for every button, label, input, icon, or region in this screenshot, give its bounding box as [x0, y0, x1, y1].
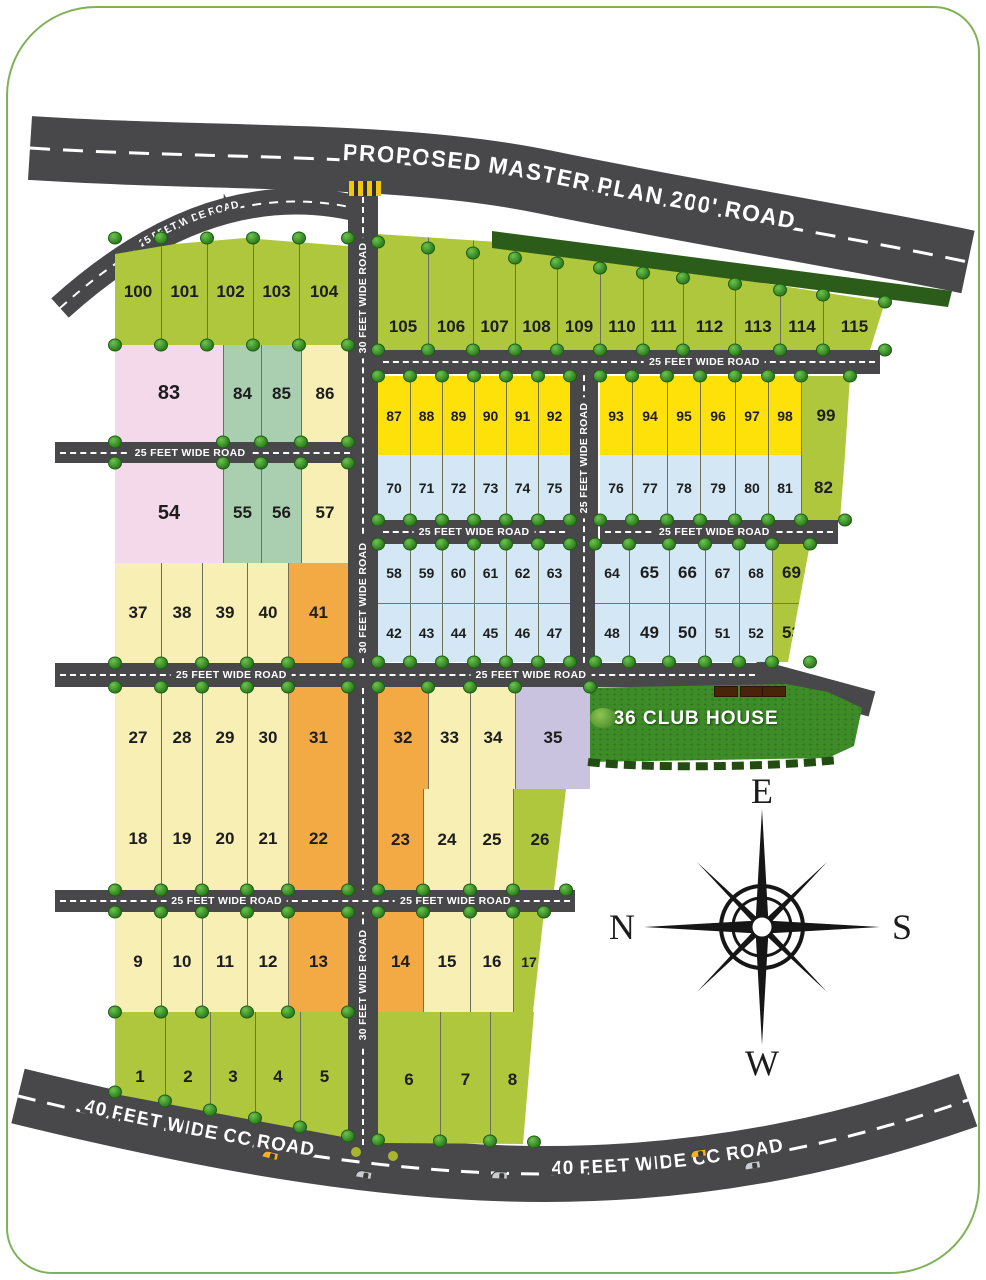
- plot-34: 34: [470, 687, 515, 789]
- bush-icon: [216, 457, 230, 470]
- palm-tree-icon: [28, 924, 92, 990]
- palm-tree-icon: [566, 1184, 630, 1250]
- bush-icon: [371, 514, 385, 527]
- bush-icon: [676, 344, 690, 357]
- bush-icon: [588, 538, 602, 551]
- bush-icon: [292, 232, 306, 245]
- plot-99: 99: [801, 376, 850, 455]
- bush-icon: [466, 247, 480, 260]
- road-width-label: 25 FEET WIDE ROAD: [654, 526, 775, 538]
- bush-icon: [773, 344, 787, 357]
- bush-icon: [416, 884, 430, 897]
- plot-number: 58: [386, 565, 402, 581]
- bush-icon: [154, 339, 168, 352]
- plot-number: 48: [604, 625, 620, 641]
- plot-number: 90: [483, 408, 499, 424]
- plot-number: 104: [310, 282, 338, 302]
- bush-icon: [660, 514, 674, 527]
- plots-83-86: 83848586: [115, 345, 348, 442]
- plot-number: 34: [484, 728, 503, 748]
- plots-87-92: 878889909192: [378, 376, 570, 455]
- bush-icon: [593, 370, 607, 383]
- plot-62: 62: [506, 544, 538, 603]
- plot-number: 115: [841, 317, 868, 337]
- plot-number: 42: [386, 625, 402, 641]
- plot-84: 84: [223, 345, 261, 442]
- plot-number: 20: [216, 829, 235, 849]
- bush-icon: [403, 538, 417, 551]
- plot-number: 12: [259, 952, 278, 972]
- bush-icon: [499, 656, 513, 669]
- palm-tree-icon: [526, 914, 590, 980]
- plot-number: 59: [419, 565, 435, 581]
- parked-car: [762, 686, 786, 697]
- plot-42: 42: [378, 604, 410, 663]
- plot-90: 90: [474, 376, 506, 455]
- plot-107: 107: [473, 230, 515, 350]
- bush-icon: [693, 514, 707, 527]
- plot-33: 33: [428, 687, 470, 789]
- plot-row: 424344454647: [378, 603, 570, 663]
- plot-58: 58: [378, 544, 410, 603]
- bush-icon: [158, 1095, 172, 1108]
- road-width-label: 30 FEET WIDE ROAD: [357, 238, 369, 359]
- plots-32-35: 32333435: [378, 687, 590, 789]
- plot-20: 20: [202, 788, 247, 890]
- plot-number: 41: [309, 603, 328, 623]
- bush-icon: [240, 657, 254, 670]
- plot-number: 75: [547, 480, 563, 496]
- plot-number: 37: [129, 603, 148, 623]
- plot-number: 50: [678, 623, 697, 643]
- plot-89: 89: [442, 376, 474, 455]
- plot-number: 32: [394, 728, 413, 748]
- plot-number: 109: [565, 317, 593, 337]
- bush-icon: [341, 436, 355, 449]
- bush-icon: [466, 344, 480, 357]
- bush-icon: [294, 457, 308, 470]
- plot-77: 77: [632, 455, 667, 520]
- plot-row: 23242526: [378, 789, 566, 890]
- plot-5: 5: [300, 1012, 348, 1142]
- horizontal-road: 25 FEET WIDE ROAD: [55, 442, 355, 463]
- bush-icon: [467, 656, 481, 669]
- palm-tree-icon: [68, 184, 132, 250]
- bush-icon: [803, 656, 817, 669]
- bush-icon: [483, 1135, 497, 1148]
- plot-81: 81: [768, 455, 801, 520]
- bush-icon: [463, 681, 477, 694]
- palm-tree-icon: [15, 1029, 79, 1095]
- bush-icon: [403, 514, 417, 527]
- bush-icon: [508, 344, 522, 357]
- plot-number: 106: [437, 317, 465, 337]
- plot-12: 12: [247, 912, 288, 1012]
- plot-row: 93949596979899: [600, 376, 850, 455]
- plot-number: 84: [233, 384, 252, 404]
- plot-70: 70: [378, 455, 410, 520]
- plot-number: 70: [386, 480, 402, 496]
- bush-icon: [435, 370, 449, 383]
- plot-number: 21: [259, 829, 278, 849]
- bush-icon: [341, 884, 355, 897]
- plot-46: 46: [506, 604, 538, 663]
- bush-icon: [765, 656, 779, 669]
- plot-number: 26: [531, 830, 550, 850]
- plot-number: 57: [316, 503, 335, 523]
- plot-96: 96: [700, 376, 735, 455]
- plot-104: 104: [299, 238, 348, 345]
- plot-number: 85: [272, 384, 291, 404]
- plot-row: 646566676869: [595, 544, 810, 603]
- compass-letter-left: N: [609, 907, 635, 947]
- plots-76-82: 76777879808182: [600, 455, 845, 520]
- plot-row: 878889909192: [378, 376, 570, 455]
- plot-number: 6: [404, 1070, 413, 1090]
- plot-92: 92: [538, 376, 570, 455]
- bush-icon: [794, 514, 808, 527]
- plot-number: 98: [777, 408, 793, 424]
- bush-icon: [463, 906, 477, 919]
- plots-58-63-42-47: 585960616263424344454647: [378, 544, 570, 662]
- bush-icon: [499, 514, 513, 527]
- club-bush-icon: [590, 708, 616, 728]
- plot-number: 35: [544, 728, 563, 748]
- bush-icon: [371, 681, 385, 694]
- plot-number: 73: [483, 480, 499, 496]
- plot-number: 3: [228, 1067, 237, 1087]
- plot-number: 1: [135, 1067, 144, 1087]
- plot-38: 38: [161, 563, 202, 663]
- plot-number: 99: [817, 406, 836, 426]
- bush-icon: [108, 1006, 122, 1019]
- bush-icon: [583, 681, 597, 694]
- bush-icon: [281, 884, 295, 897]
- bush-icon: [154, 657, 168, 670]
- plot-number: 25: [483, 830, 502, 850]
- plot-number: 40: [259, 603, 278, 623]
- bush-icon: [508, 252, 522, 265]
- road-width-label: 30 FEET WIDE ROAD: [357, 538, 369, 659]
- bush-icon: [108, 906, 122, 919]
- bush-icon: [416, 906, 430, 919]
- club-house-label: 36 CLUB HOUSE: [614, 708, 779, 730]
- plot-68: 68: [739, 544, 772, 603]
- bush-icon: [843, 370, 857, 383]
- plot-102: 102: [207, 238, 253, 345]
- bush-icon: [693, 370, 707, 383]
- plot-94: 94: [632, 376, 667, 455]
- road-width-label: 25 FEET WIDE ROAD: [395, 895, 516, 907]
- bush-icon: [550, 257, 564, 270]
- bush-icon: [341, 1006, 355, 1019]
- plot-number: 28: [173, 728, 192, 748]
- road-width-label: 25 FEET WIDE ROAD: [130, 447, 251, 459]
- plot-number: 64: [604, 565, 620, 581]
- plot-6: 6: [378, 1012, 440, 1147]
- plot-97: 97: [735, 376, 768, 455]
- bush-icon: [341, 681, 355, 694]
- palm-tree-icon: [252, 1159, 316, 1225]
- bush-icon: [154, 906, 168, 919]
- plots-9-13: 910111213: [115, 912, 348, 1012]
- plot-74: 74: [506, 455, 538, 520]
- plot-25: 25: [470, 789, 513, 890]
- crossing-stripes: [349, 181, 381, 196]
- bush-icon: [878, 296, 892, 309]
- bush-icon: [433, 1134, 447, 1147]
- plot-98: 98: [768, 376, 801, 455]
- plot-number: 78: [676, 480, 692, 496]
- bush-icon: [506, 884, 520, 897]
- plot-24: 24: [423, 789, 470, 890]
- bush-icon: [550, 344, 564, 357]
- bush-icon: [559, 884, 573, 897]
- bush-icon: [803, 538, 817, 551]
- plot-number: 112: [696, 317, 723, 337]
- plot-number: 63: [547, 565, 563, 581]
- bush-icon: [341, 339, 355, 352]
- plot-number: 74: [515, 480, 531, 496]
- plot-49: 49: [629, 604, 669, 663]
- bush-icon: [531, 656, 545, 669]
- plot-87: 87: [378, 376, 410, 455]
- plot-number: 51: [715, 625, 731, 641]
- bush-icon: [794, 370, 808, 383]
- palm-tree-icon: [14, 64, 78, 130]
- bush-icon: [203, 1103, 217, 1116]
- road-width-label: 25 FEET WIDE ROAD: [578, 398, 590, 519]
- plot-9: 9: [115, 912, 161, 1012]
- palm-tree-icon: [48, 1114, 112, 1180]
- plot-47: 47: [538, 604, 570, 663]
- parked-car: [714, 686, 738, 697]
- bush-icon: [728, 344, 742, 357]
- road-dash-line: [383, 361, 875, 363]
- road-width-label: 30 FEET WIDE ROAD: [357, 925, 369, 1046]
- plot-57: 57: [301, 463, 348, 563]
- bush-icon: [371, 656, 385, 669]
- bush-icon: [341, 1130, 355, 1143]
- bush-icon: [200, 339, 214, 352]
- plot-number: 39: [216, 603, 235, 623]
- plot-32: 32: [378, 687, 428, 789]
- road-width-label: 25 FEET WIDE ROAD: [471, 669, 592, 681]
- palm-tree-icon: [782, 1126, 846, 1192]
- bush-icon: [281, 657, 295, 670]
- site-plan-map: PROPOSED MASTER PLAN 200' ROAD 25 FEET W…: [0, 0, 986, 1280]
- plot-82: 82: [801, 455, 845, 520]
- plot-number: 61: [483, 565, 499, 581]
- bush-icon: [467, 538, 481, 551]
- plots-37-41: 3738394041: [115, 563, 348, 663]
- plot-30: 30: [247, 687, 288, 788]
- plots-100-104: 100101102103104: [115, 238, 348, 345]
- bush-icon: [341, 906, 355, 919]
- plot-number: 95: [676, 408, 692, 424]
- plot-100: 100: [115, 238, 161, 345]
- bush-icon: [240, 906, 254, 919]
- bush-icon: [435, 656, 449, 669]
- bush-icon: [294, 436, 308, 449]
- compass-letter-right: S: [892, 907, 912, 947]
- plot-44: 44: [442, 604, 474, 663]
- plot-number: 86: [316, 384, 335, 404]
- plots-18-22: 1819202122: [115, 788, 348, 890]
- road-width-label: 25 FEET WIDE ROAD: [166, 895, 287, 907]
- bush-icon: [254, 457, 268, 470]
- palm-tree-icon: [630, 1079, 694, 1145]
- plot-41: 41: [288, 563, 348, 663]
- bush-icon: [728, 514, 742, 527]
- plot-40: 40: [247, 563, 288, 663]
- plot-59: 59: [410, 544, 442, 603]
- bush-icon: [371, 1134, 385, 1147]
- bush-icon: [200, 232, 214, 245]
- bush-icon: [371, 370, 385, 383]
- plot-number: 76: [608, 480, 624, 496]
- bush-icon: [371, 236, 385, 249]
- plot-79: 79: [700, 455, 735, 520]
- plot-number: 9: [133, 952, 142, 972]
- plot-number: 65: [640, 563, 659, 583]
- bush-icon: [240, 884, 254, 897]
- plot-19: 19: [161, 788, 202, 890]
- bush-icon: [154, 1006, 168, 1019]
- plot-65: 65: [629, 544, 669, 603]
- plot-18: 18: [115, 788, 161, 890]
- palm-tree-icon: [825, 1039, 889, 1105]
- plot-number: 23: [391, 830, 410, 850]
- bush-icon: [254, 436, 268, 449]
- plot-number: 110: [608, 317, 635, 337]
- plot-37: 37: [115, 563, 161, 663]
- bush-icon: [421, 681, 435, 694]
- plot-number: 45: [483, 625, 499, 641]
- bush-icon: [292, 339, 306, 352]
- plot-56: 56: [261, 463, 301, 563]
- bush-icon: [195, 884, 209, 897]
- bush-icon: [108, 436, 122, 449]
- plot-23: 23: [378, 789, 423, 890]
- bush-icon: [248, 1112, 262, 1125]
- bush-icon: [531, 538, 545, 551]
- bush-icon: [246, 232, 260, 245]
- plot-45: 45: [474, 604, 506, 663]
- plot-21: 21: [247, 788, 288, 890]
- plot-number: 82: [814, 478, 833, 498]
- plots-64-69-48-53: 646566676869484950515253: [595, 544, 810, 662]
- plot-number: 24: [438, 830, 457, 850]
- palm-tree-icon: [208, 84, 272, 150]
- bush-icon: [636, 267, 650, 280]
- plot-number: 103: [262, 282, 290, 302]
- plot-number: 91: [515, 408, 531, 424]
- bush-icon: [773, 283, 787, 296]
- plot-row: 910111213: [115, 912, 348, 1012]
- plots-93-99: 93949596979899: [600, 376, 850, 455]
- plot-91: 91: [506, 376, 538, 455]
- bush-icon: [293, 1120, 307, 1133]
- plot-101: 101: [161, 238, 207, 345]
- bush-icon: [341, 232, 355, 245]
- plot-row: 1819202122: [115, 788, 348, 890]
- bush-icon: [732, 538, 746, 551]
- bush-icon: [838, 514, 852, 527]
- plot-number: 108: [522, 317, 550, 337]
- plot-88: 88: [410, 376, 442, 455]
- bush-icon: [531, 370, 545, 383]
- plot-number: 10: [173, 952, 192, 972]
- plot-number: 55: [233, 503, 252, 523]
- plot-60: 60: [442, 544, 474, 603]
- plot-number: 68: [748, 565, 764, 581]
- bush-icon: [371, 344, 385, 357]
- plot-43: 43: [410, 604, 442, 663]
- plot-number: 30: [259, 728, 278, 748]
- palm-tree-icon: [620, 146, 684, 212]
- plot-row: 76777879808182: [600, 455, 845, 520]
- plot-number: 62: [515, 565, 531, 581]
- plot-39: 39: [202, 563, 247, 663]
- bush-icon: [622, 538, 636, 551]
- plot-number: 87: [386, 408, 402, 424]
- plot-number: 67: [715, 565, 731, 581]
- palm-tree-icon: [74, 369, 138, 435]
- plot-number: 11: [216, 952, 234, 972]
- plot-number: 47: [547, 625, 563, 641]
- plot-35: 35: [515, 687, 590, 789]
- plot-number: 92: [547, 408, 563, 424]
- plot-7: 7: [440, 1012, 490, 1147]
- bush-icon: [435, 514, 449, 527]
- bush-icon: [761, 514, 775, 527]
- plot-number: 77: [642, 480, 658, 496]
- plot-number: 60: [451, 565, 467, 581]
- plot-number: 19: [173, 829, 192, 849]
- plot-number: 8: [508, 1070, 517, 1090]
- bush-icon: [676, 272, 690, 285]
- bush-icon: [698, 538, 712, 551]
- plot-number: 83: [158, 382, 180, 405]
- plot-13: 13: [288, 912, 348, 1012]
- plot-29: 29: [202, 687, 247, 788]
- bush-icon: [154, 232, 168, 245]
- plot-number: 96: [710, 408, 726, 424]
- compass-letter-top: E: [751, 771, 773, 811]
- palm-tree-icon: [68, 484, 132, 550]
- plot-51: 51: [705, 604, 739, 663]
- plot-number: 79: [710, 480, 726, 496]
- bush-icon: [403, 656, 417, 669]
- plot-number: 2: [183, 1067, 192, 1087]
- plot-61: 61: [474, 544, 506, 603]
- plot-number: 107: [480, 317, 508, 337]
- bush-icon: [662, 656, 676, 669]
- bush-icon: [728, 278, 742, 291]
- plot-number: 101: [170, 282, 198, 302]
- plot-number: 43: [419, 625, 435, 641]
- plot-14: 14: [378, 912, 423, 1012]
- plot-number: 89: [451, 408, 467, 424]
- plot-number: 111: [650, 317, 677, 337]
- plot-number: 4: [273, 1067, 282, 1087]
- bush-icon: [588, 656, 602, 669]
- palm-tree-icon: [415, 1174, 479, 1240]
- bush-icon: [563, 514, 577, 527]
- plot-number: 31: [309, 728, 328, 748]
- plot-11: 11: [202, 912, 247, 1012]
